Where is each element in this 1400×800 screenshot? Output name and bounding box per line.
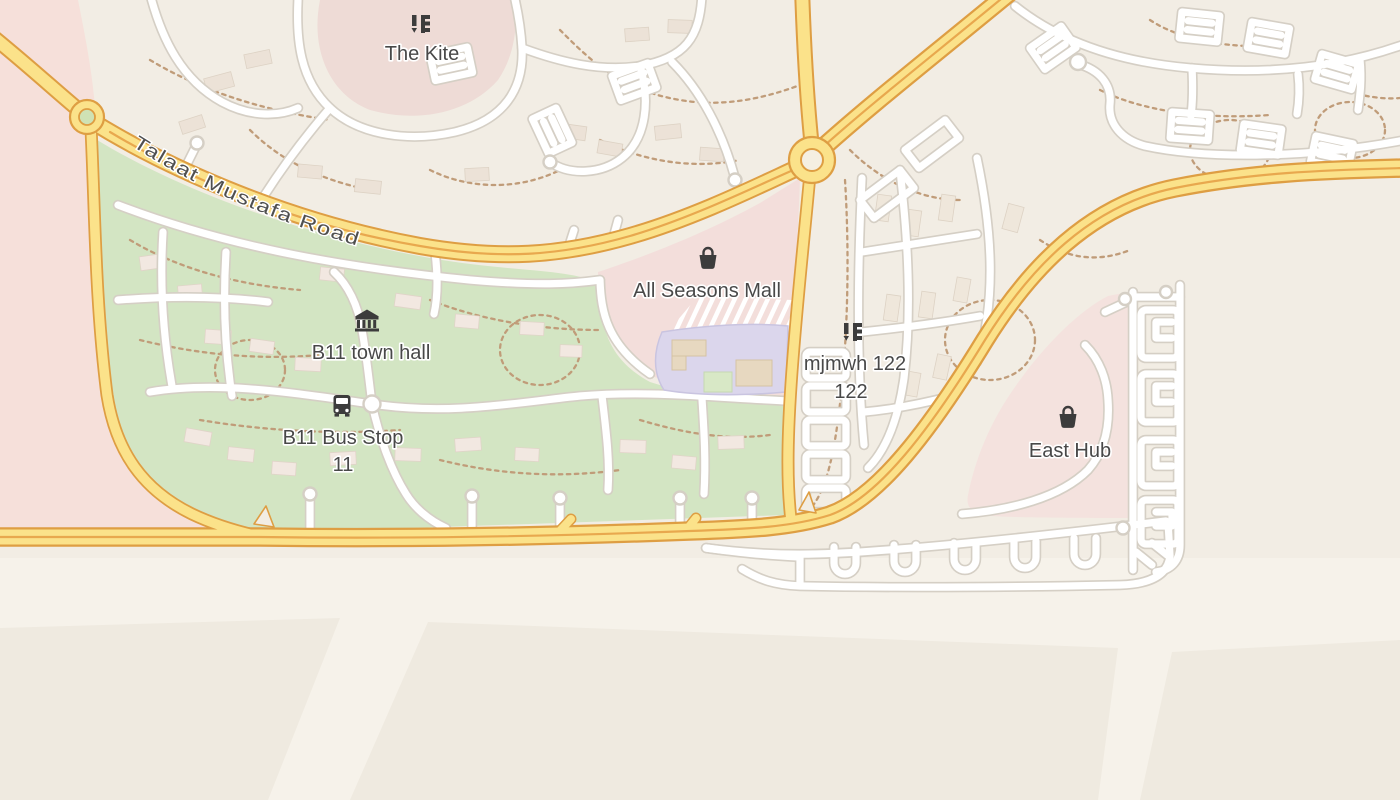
map-canvas[interactable]: Talaat Mustafa Road The Kite All Seasons… [0, 0, 1400, 800]
mini-roundabout [364, 396, 381, 413]
bus-icon [334, 395, 351, 417]
roundabout-east [789, 137, 835, 183]
poi-label: 11 [333, 454, 354, 476]
poi-label: B11 Bus Stop [283, 427, 404, 449]
poi-label: The Kite [385, 43, 459, 65]
poi-label: All Seasons Mall [633, 280, 781, 302]
roundabout-west [70, 100, 104, 134]
poi-label: mjmwh 122 [804, 353, 906, 375]
poi-label: East Hub [1029, 440, 1111, 462]
poi-label: B11 town hall [312, 342, 431, 364]
mini-roundabout [1070, 54, 1086, 70]
poi-label: 122 [834, 381, 867, 403]
